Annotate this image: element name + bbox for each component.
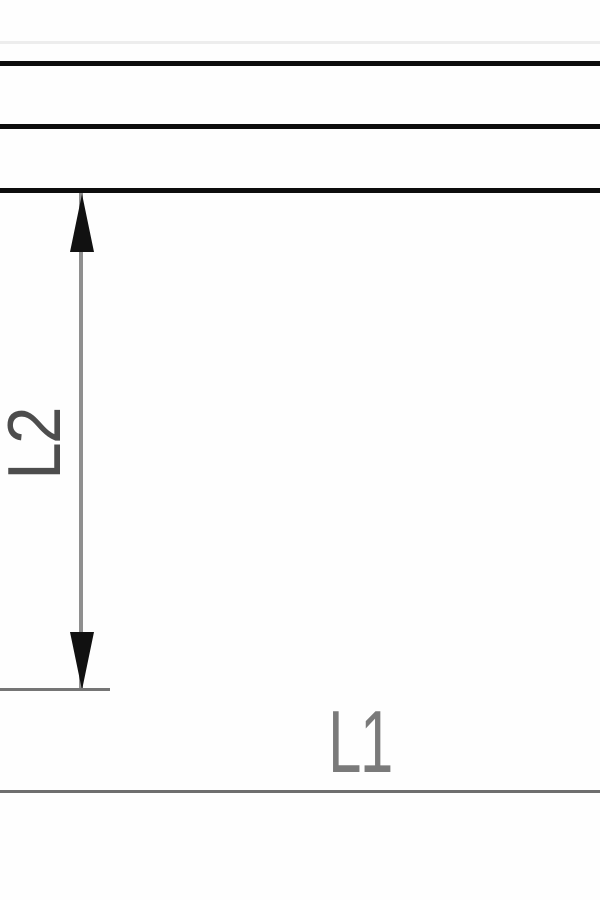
dimension-label-l1: L1: [326, 697, 394, 787]
vertical-dimension-line: [79, 193, 83, 691]
dimension-label-l2: L2: [0, 404, 74, 485]
lower-edge-line: [0, 188, 600, 193]
drawing-canvas: L2 L1: [0, 0, 600, 900]
middle-edge-line: [0, 124, 600, 129]
dimension-arrows: [0, 0, 600, 900]
bottom-left-extension-line: [0, 688, 110, 691]
faint-top-line: [0, 41, 600, 44]
top-edge-line: [0, 61, 600, 66]
bottom-boundary-line: [0, 790, 600, 793]
